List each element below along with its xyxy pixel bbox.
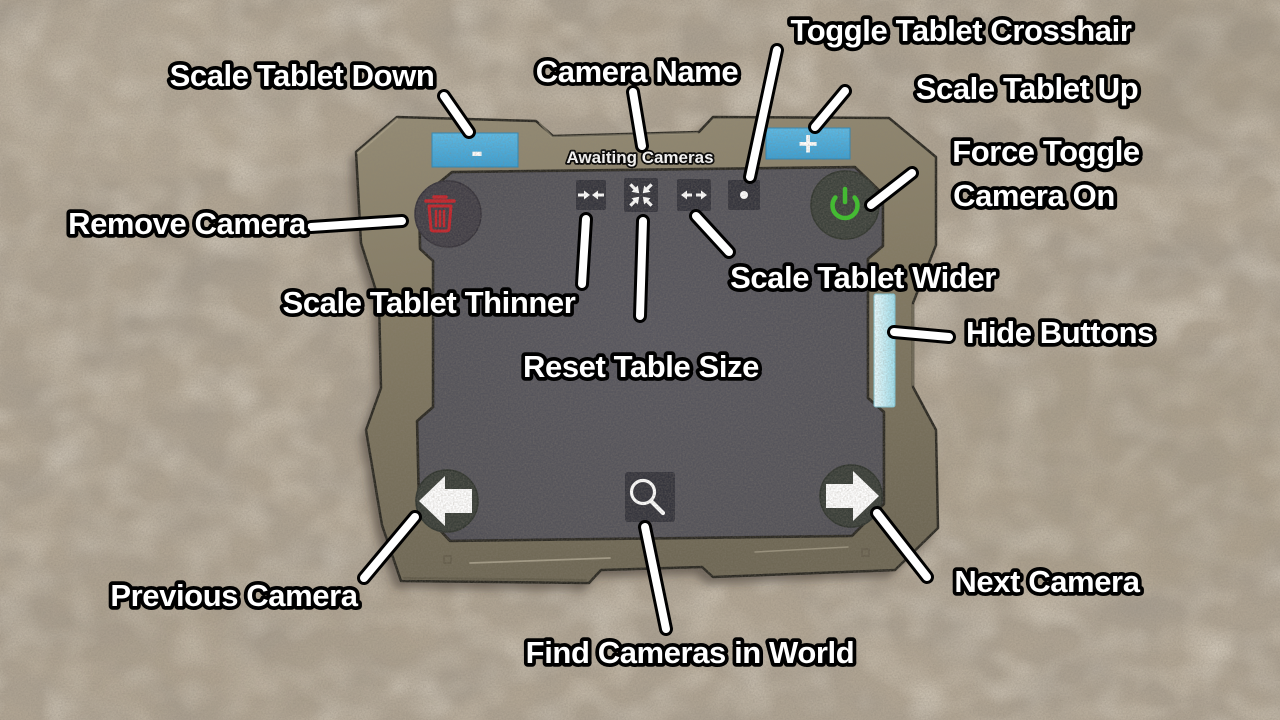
scale-tablet-up-button[interactable]: +	[766, 125, 850, 163]
annotation-label: Reset Table Size	[523, 349, 759, 384]
annotation-label: Remove Camera	[68, 206, 307, 241]
scale-tablet-thinner-button[interactable]	[576, 180, 606, 210]
dot-icon	[740, 191, 748, 199]
reset-table-size-button[interactable]	[624, 178, 658, 212]
annotation-label: Camera Name	[536, 54, 739, 89]
annotation-label: Hide Buttons	[966, 315, 1154, 350]
trash-icon	[426, 197, 454, 231]
annotation-label: Find Cameras in World	[526, 635, 855, 670]
screenshot-root: - + Awaiting Cameras	[0, 0, 1280, 720]
annotation-label: Next Camera	[954, 564, 1140, 599]
annotation-label: Toggle Tablet Crosshair	[790, 13, 1131, 48]
annotation-label: Scale Tablet Thinner	[283, 285, 576, 320]
annotation-label: Scale Tablet Up	[916, 71, 1139, 106]
annotation-label: Scale Tablet Down	[170, 58, 435, 93]
hide-buttons-handle[interactable]	[874, 294, 895, 407]
scale-tablet-wider-button[interactable]	[677, 179, 711, 211]
annotation-label-line-2: Camera On	[953, 178, 1115, 213]
remove-camera-button[interactable]	[415, 181, 481, 247]
annotation-label: Previous Camera	[110, 578, 358, 613]
scale-tablet-down-button[interactable]: -	[432, 130, 518, 171]
annotation-label-line-1: Force Toggle	[952, 134, 1140, 169]
annotation-label: Scale Tablet Wider	[730, 260, 996, 295]
previous-camera-button[interactable]	[416, 470, 478, 532]
find-cameras-button[interactable]	[625, 472, 675, 522]
toggle-tablet-crosshair-button[interactable]	[728, 180, 760, 210]
